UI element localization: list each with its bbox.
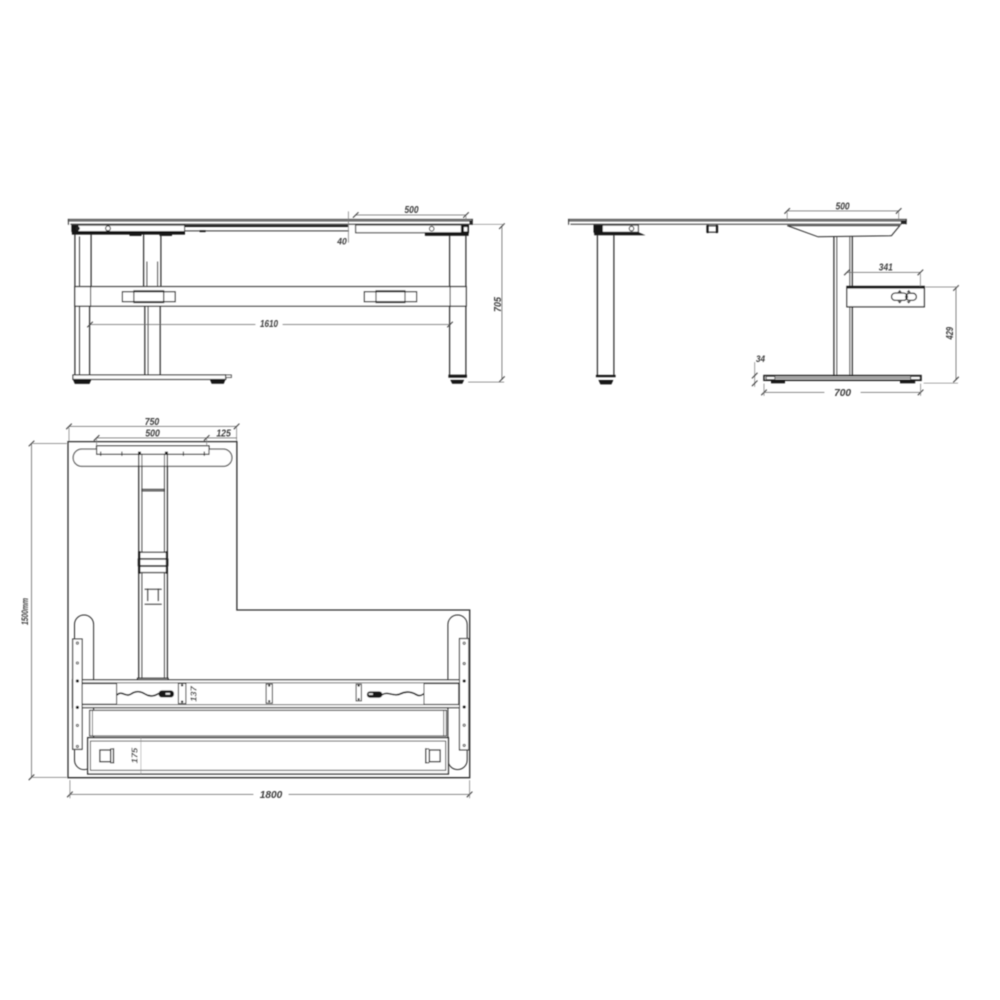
svg-text:34: 34	[756, 354, 765, 364]
svg-text:137: 137	[189, 685, 199, 702]
svg-text:500: 500	[145, 428, 160, 439]
svg-text:175: 175	[129, 748, 139, 764]
svg-text:341: 341	[879, 263, 893, 274]
svg-text:1500mm: 1500mm	[20, 598, 30, 625]
svg-text:1610: 1610	[260, 319, 278, 330]
svg-text:700: 700	[834, 388, 852, 399]
svg-text:125: 125	[216, 428, 231, 439]
svg-text:750: 750	[145, 417, 160, 428]
svg-text:429: 429	[945, 326, 956, 340]
svg-text:1800: 1800	[260, 790, 283, 801]
svg-text:705: 705	[493, 296, 504, 312]
svg-text:500: 500	[836, 202, 851, 213]
svg-text:40: 40	[336, 237, 347, 247]
svg-text:500: 500	[405, 205, 420, 216]
